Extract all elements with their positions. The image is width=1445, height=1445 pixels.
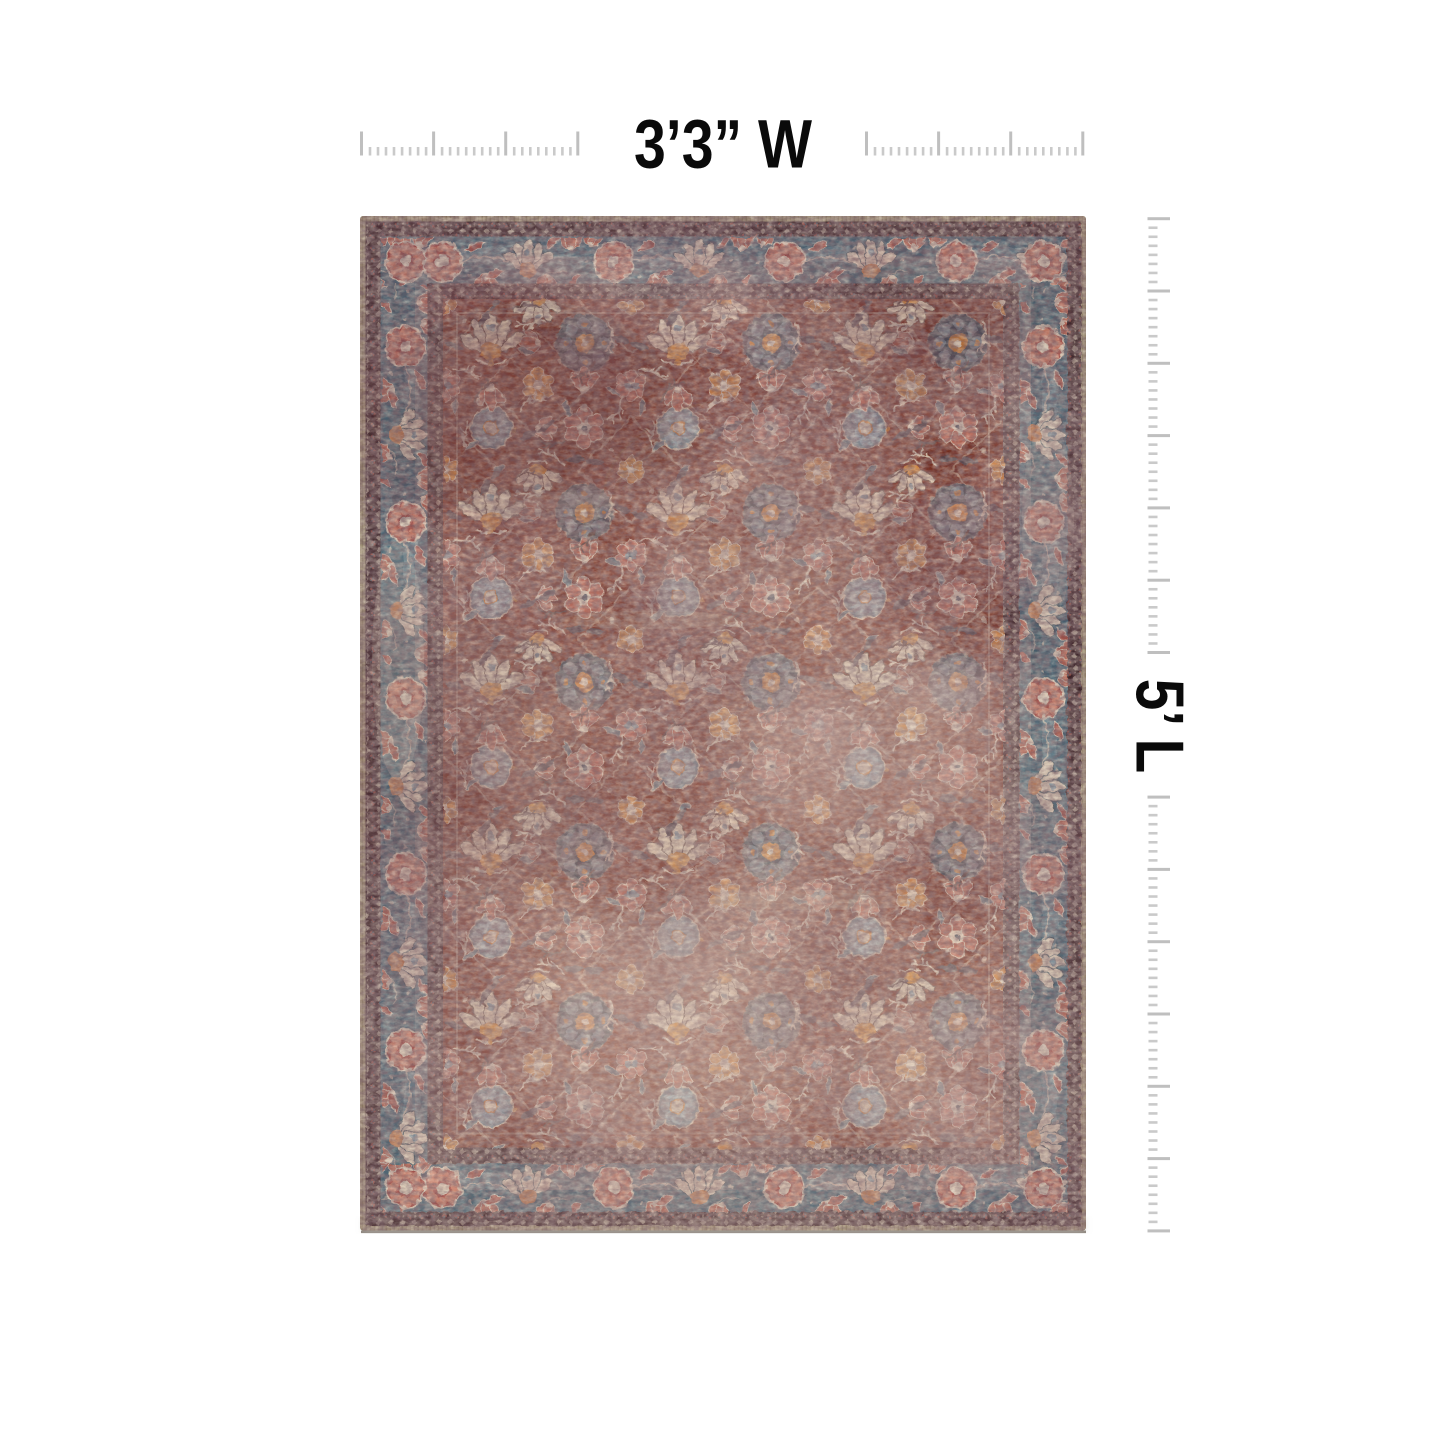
svg-text:5’ L: 5’ L [1122, 679, 1198, 774]
svg-text:3’3” W: 3’3” W [634, 106, 813, 183]
